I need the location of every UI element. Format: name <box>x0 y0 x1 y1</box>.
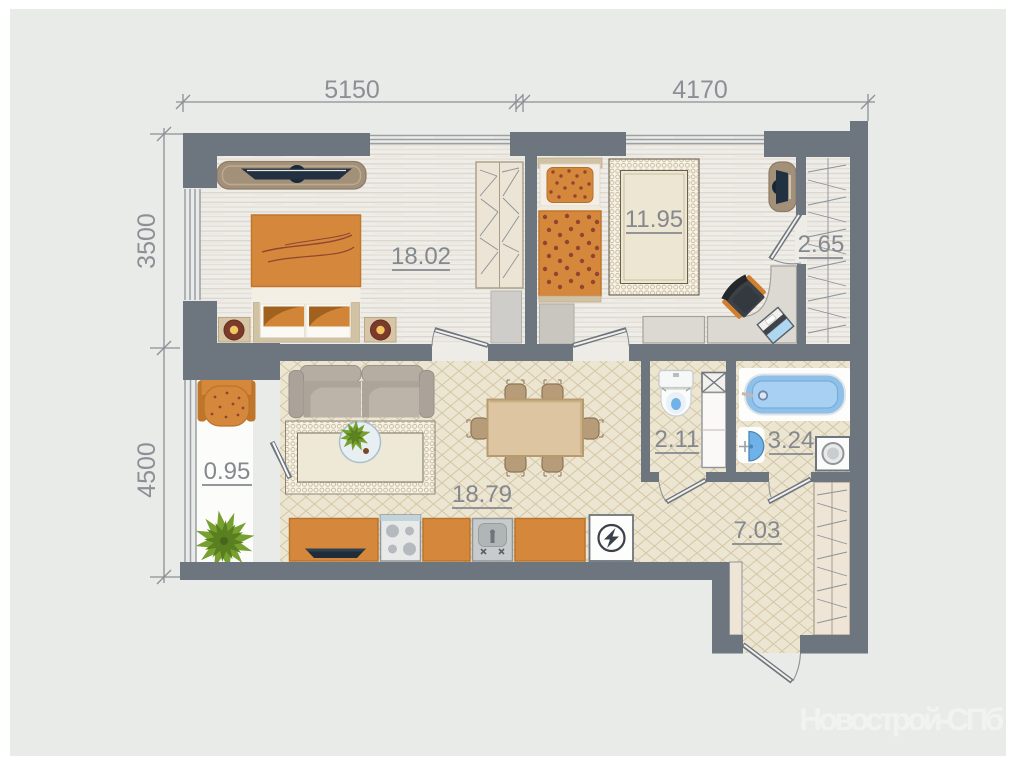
svg-text:18.02: 18.02 <box>391 243 451 270</box>
svg-text:5150: 5150 <box>324 76 380 104</box>
svg-text:2.11: 2.11 <box>655 426 700 453</box>
svg-text:3.24: 3.24 <box>768 427 815 454</box>
svg-text:0.95: 0.95 <box>204 458 251 485</box>
svg-text:4500: 4500 <box>133 442 161 498</box>
svg-text:4170: 4170 <box>672 76 728 104</box>
svg-text:18.79: 18.79 <box>452 481 512 508</box>
svg-text:Новострой-СПб: Новострой-СПб <box>799 701 1004 737</box>
svg-text:7.03: 7.03 <box>734 517 781 544</box>
svg-text:3500: 3500 <box>133 213 161 269</box>
svg-text:2.65: 2.65 <box>798 231 845 258</box>
svg-text:11.95: 11.95 <box>625 206 683 233</box>
